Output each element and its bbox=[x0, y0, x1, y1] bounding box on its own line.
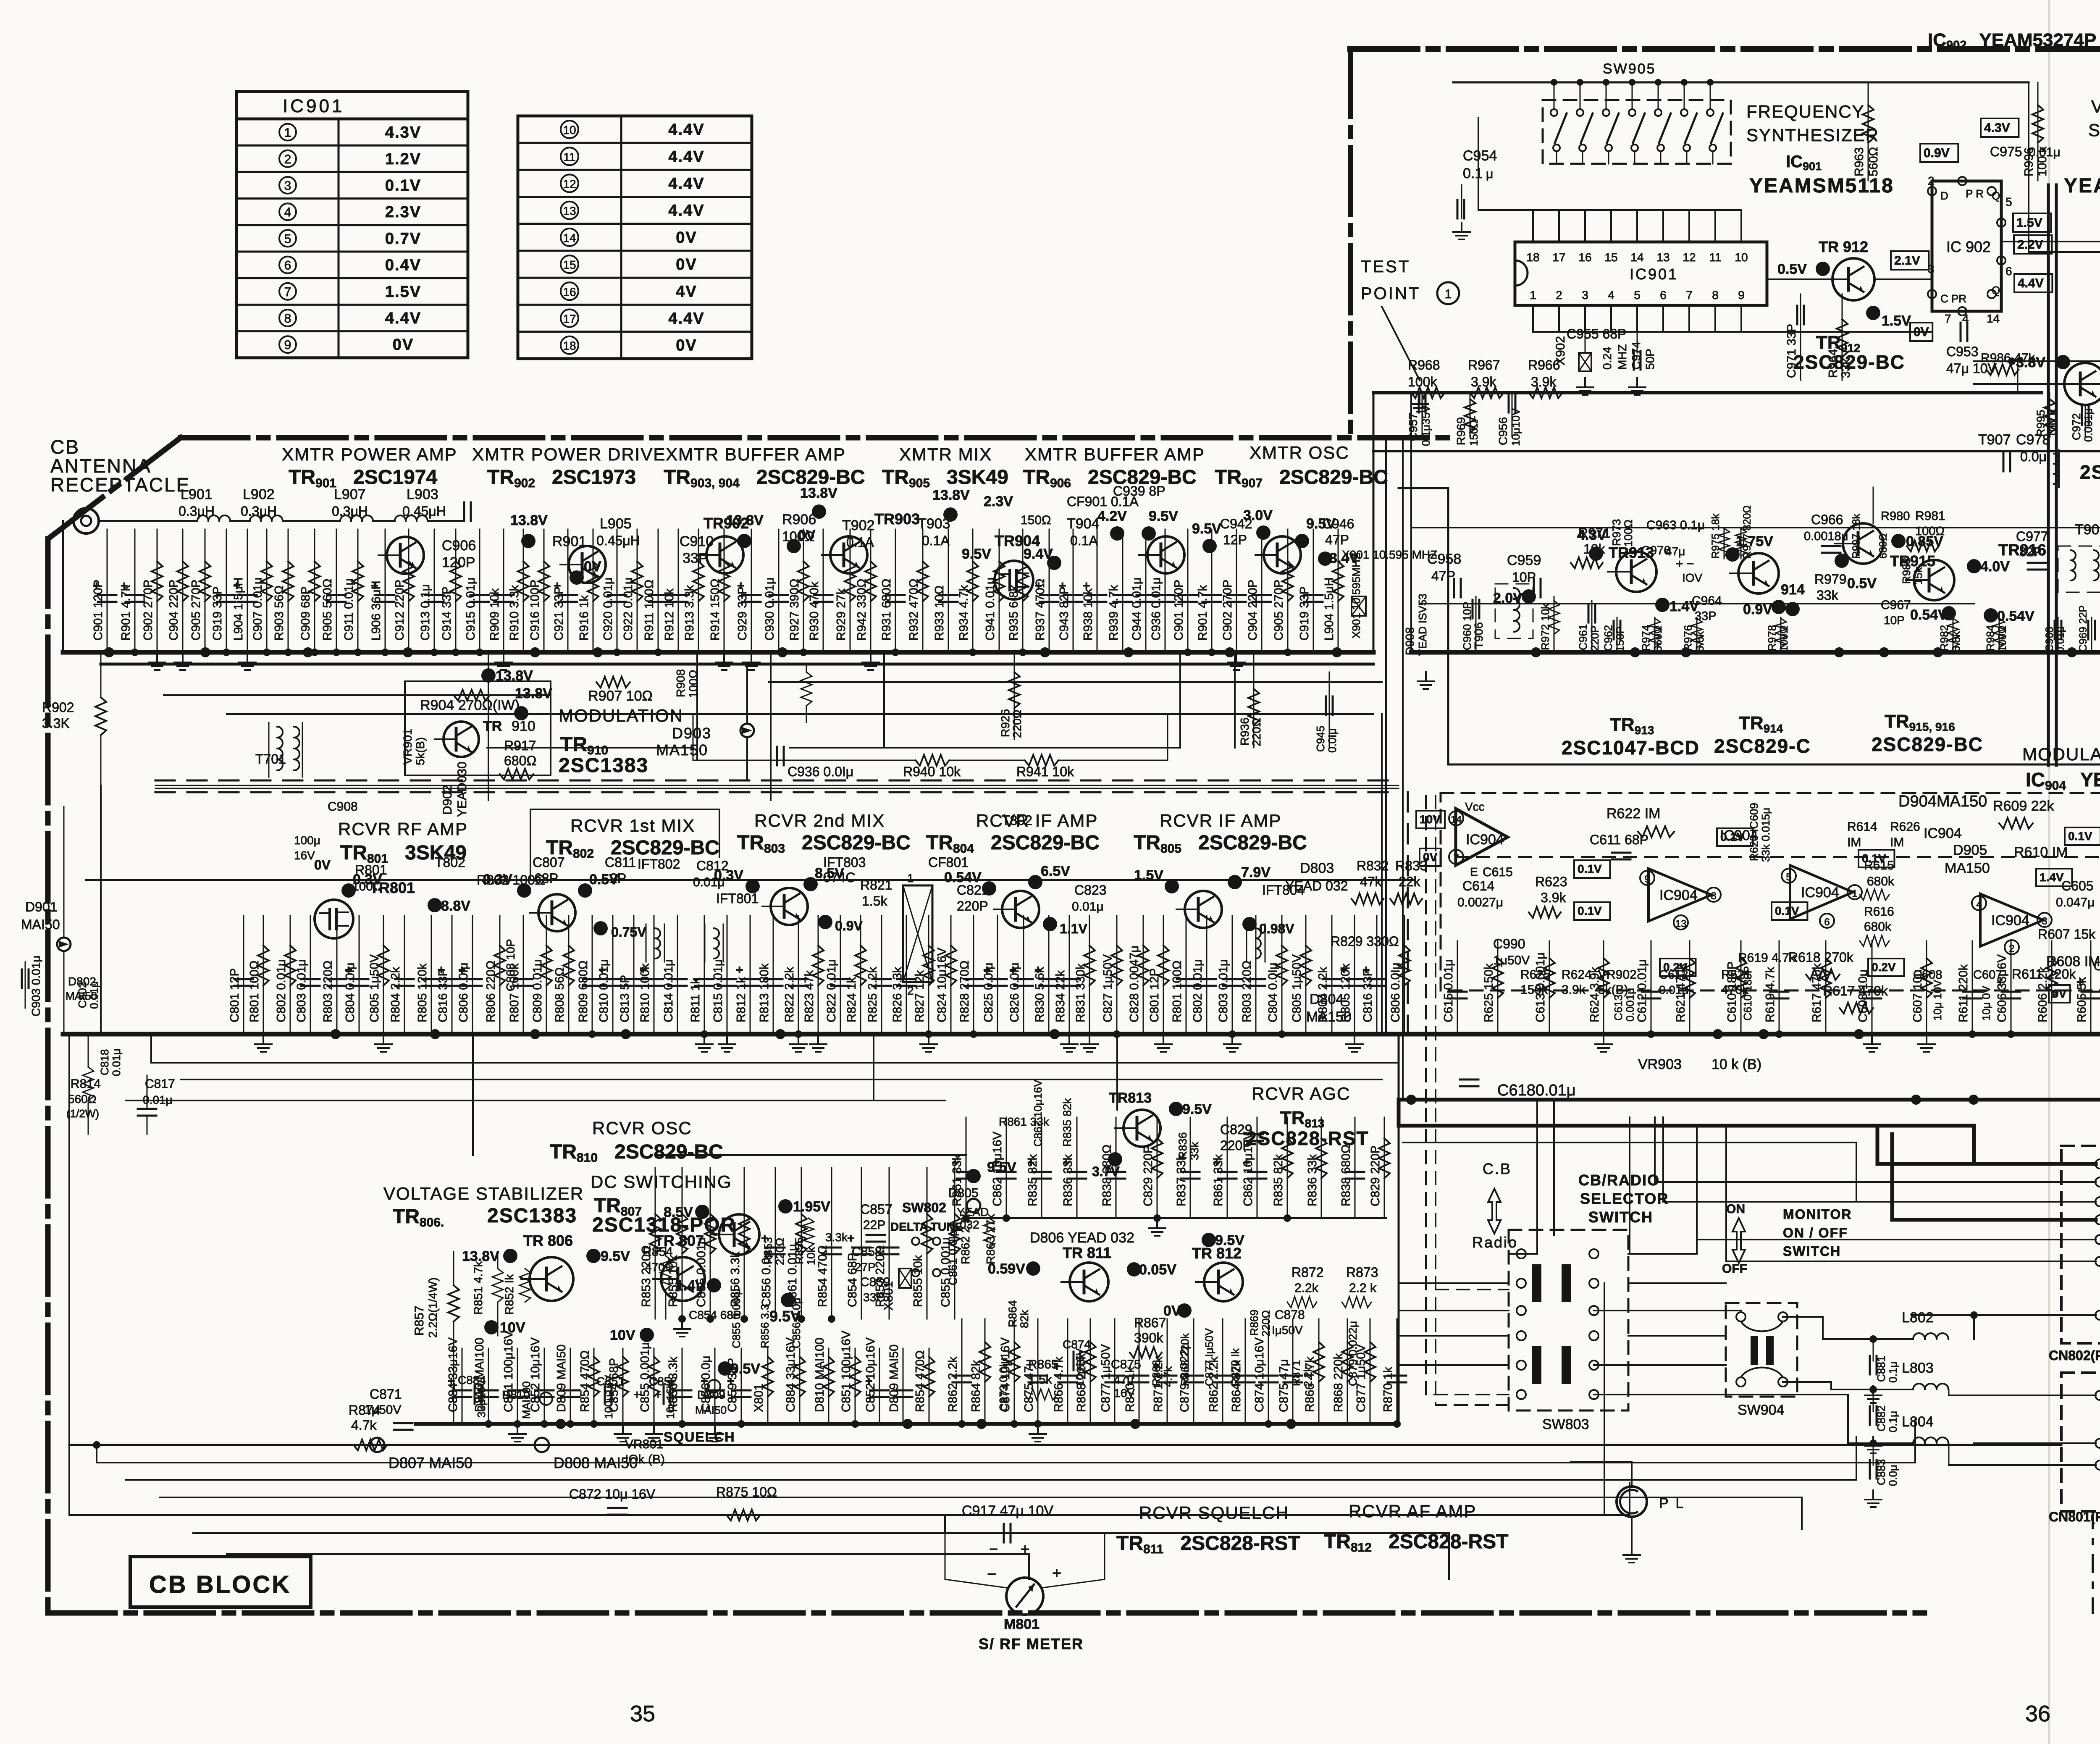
svg-text:R935 6.8k: R935 6.8k bbox=[1007, 585, 1021, 641]
svg-text:R855 10k: R855 10k bbox=[667, 1255, 680, 1307]
svg-text:5.6k: 5.6k bbox=[1693, 631, 1706, 652]
svg-text:STABILIZER: STABILIZER bbox=[2088, 120, 2100, 140]
svg-text:22P: 22P bbox=[863, 1218, 885, 1232]
svg-text:R979: R979 bbox=[1814, 572, 1847, 587]
svg-text:1: 1 bbox=[284, 126, 291, 140]
svg-text:3: 3 bbox=[1928, 263, 1935, 276]
svg-text:R804 2.2k: R804 2.2k bbox=[1316, 967, 1330, 1022]
svg-text:IC904: IC904 bbox=[1924, 825, 1962, 841]
svg-text:47P: 47P bbox=[1325, 532, 1349, 547]
svg-text:33P: 33P bbox=[682, 550, 708, 566]
svg-text:TR8032SC829-BC: TR8032SC829-BC bbox=[737, 832, 911, 856]
svg-text:POINT: POINT bbox=[1361, 284, 1420, 303]
svg-text:R856 3.3k: R856 3.3k bbox=[729, 1251, 742, 1307]
svg-text:9.5V: 9.5V bbox=[601, 1248, 630, 1264]
svg-text:R912 10k: R912 10k bbox=[663, 588, 676, 641]
svg-text:R803 220Ω: R803 220Ω bbox=[1240, 961, 1254, 1022]
svg-text:R823 47k: R823 47k bbox=[803, 970, 816, 1022]
svg-text:R856 3.3k: R856 3.3k bbox=[667, 1356, 680, 1412]
svg-text:TR: TR bbox=[483, 718, 502, 734]
svg-text:R857: R857 bbox=[412, 1305, 426, 1336]
svg-text:100Ω: 100Ω bbox=[352, 880, 382, 893]
svg-text:1.95V: 1.95V bbox=[793, 1199, 830, 1215]
svg-text:C803 0.01μ: C803 0.01μ bbox=[295, 959, 308, 1022]
svg-text:FREQUENCY: FREQUENCY bbox=[1746, 102, 1865, 121]
svg-text:R909 10k: R909 10k bbox=[488, 588, 501, 641]
svg-text:R832: R832 bbox=[1357, 858, 1389, 873]
svg-text:R805 120k: R805 120k bbox=[1339, 963, 1352, 1022]
svg-text:4.4V: 4.4V bbox=[668, 202, 704, 220]
svg-text:SYNTHESIZER: SYNTHESIZER bbox=[1746, 125, 1879, 145]
svg-text:R963: R963 bbox=[1853, 147, 1866, 176]
svg-text:+: + bbox=[1052, 1565, 1061, 1582]
svg-text:TEST: TEST bbox=[1361, 257, 1410, 276]
svg-text:C856 0.0μ: C856 0.0μ bbox=[699, 1356, 713, 1412]
svg-text:R616: R616 bbox=[1864, 905, 1894, 919]
svg-text:7.9V: 7.9V bbox=[1241, 864, 1270, 880]
svg-text:C606 33μ6V: C606 33μ6V bbox=[1995, 954, 2009, 1022]
svg-text:R870 1k: R870 1k bbox=[1381, 1366, 1395, 1412]
svg-text:C852 10μ16V: C852 10μ16V bbox=[529, 1337, 542, 1412]
svg-text:1.5V: 1.5V bbox=[1882, 313, 1911, 329]
svg-text:4.4V: 4.4V bbox=[668, 121, 704, 139]
svg-text:CN802(P): CN802(P) bbox=[2049, 1348, 2100, 1363]
svg-text:C957: C957 bbox=[1407, 413, 1420, 441]
svg-text:12: 12 bbox=[563, 178, 576, 191]
svg-text:D808 MAI50: D808 MAI50 bbox=[554, 1454, 638, 1471]
svg-text:0.3μH: 0.3μH bbox=[241, 504, 277, 519]
svg-text:L906 36μH: L906 36μH bbox=[370, 581, 383, 641]
svg-text:D902: D902 bbox=[441, 785, 454, 815]
svg-text:C611 68P: C611 68P bbox=[1590, 832, 1648, 847]
svg-text:100Ω: 100Ω bbox=[1622, 520, 1635, 547]
svg-text:C859 33P: C859 33P bbox=[726, 1358, 739, 1412]
svg-text:R852 Ik: R852 Ik bbox=[503, 1274, 516, 1315]
svg-text:C905 270P: C905 270P bbox=[189, 580, 203, 641]
svg-text:Radio: Radio bbox=[1472, 1234, 1518, 1251]
svg-text:914: 914 bbox=[1781, 582, 1805, 598]
svg-text:R926: R926 bbox=[999, 709, 1012, 737]
svg-text:Vcc: Vcc bbox=[1465, 800, 1485, 813]
svg-text:R967: R967 bbox=[1468, 357, 1500, 373]
svg-text:100 k: 100 k bbox=[2036, 147, 2049, 176]
svg-text:5: 5 bbox=[2005, 195, 2012, 208]
svg-text:R822 2.2k: R822 2.2k bbox=[783, 967, 796, 1022]
svg-text:0.45μH: 0.45μH bbox=[596, 533, 640, 548]
svg-text:L804: L804 bbox=[1902, 1414, 1934, 1430]
svg-text:910: 910 bbox=[512, 718, 535, 734]
svg-text:C966: C966 bbox=[1811, 512, 1843, 527]
svg-text:3.9k: 3.9k bbox=[1562, 983, 1586, 997]
svg-text:+ −: + − bbox=[1676, 557, 1694, 571]
svg-text:3.3k: 3.3k bbox=[825, 1231, 848, 1244]
svg-text:2SC1383: 2SC1383 bbox=[559, 754, 648, 777]
svg-text:C855 0.001μ: C855 0.001μ bbox=[638, 1342, 652, 1412]
svg-text:R933 10Ω: R933 10Ω bbox=[933, 586, 946, 641]
svg-text:R824 1k: R824 1k bbox=[845, 977, 858, 1022]
svg-text:100Ω: 100Ω bbox=[1915, 525, 1945, 538]
svg-text:R907 10Ω: R907 10Ω bbox=[588, 688, 653, 704]
svg-text:R905 560Ω: R905 560Ω bbox=[321, 579, 334, 641]
svg-text:C816 33P: C816 33P bbox=[1361, 968, 1375, 1022]
svg-text:R854 470Ω: R854 470Ω bbox=[578, 1350, 592, 1412]
svg-text:−: − bbox=[989, 1540, 998, 1558]
svg-text:C945: C945 bbox=[1314, 726, 1327, 752]
svg-text:1μ50V: 1μ50V bbox=[365, 1403, 401, 1417]
svg-text:XMTR BUFFER AMP: XMTR BUFFER AMP bbox=[1025, 444, 1205, 464]
svg-text:R830 5.6k: R830 5.6k bbox=[1033, 967, 1047, 1022]
svg-text:1.1V: 1.1V bbox=[1060, 921, 1087, 936]
svg-text:XMTR OSC: XMTR OSC bbox=[1249, 443, 1349, 462]
svg-text:C955 68P: C955 68P bbox=[1567, 326, 1626, 341]
svg-text:C875 47μ: C875 47μ bbox=[1277, 1359, 1291, 1412]
svg-text:R814: R814 bbox=[71, 1077, 101, 1091]
svg-text:R938 10k: R938 10k bbox=[1081, 588, 1095, 641]
svg-text:C905 270P: C905 270P bbox=[1272, 580, 1286, 641]
svg-text:35: 35 bbox=[630, 1701, 655, 1726]
svg-text:RECEPTACLE: RECEPTACLE bbox=[50, 474, 190, 496]
svg-text:R811 1k: R811 1k bbox=[689, 978, 702, 1022]
svg-text:13: 13 bbox=[1675, 918, 1687, 930]
svg-text:R901 4.7k: R901 4.7k bbox=[119, 585, 133, 641]
svg-text:CF901 0.1A: CF901 0.1A bbox=[1067, 494, 1139, 509]
svg-text:SWITCH: SWITCH bbox=[1588, 1208, 1653, 1226]
svg-text:6.5V: 6.5V bbox=[1041, 863, 1070, 879]
svg-text:R986 47k: R986 47k bbox=[1981, 351, 2035, 365]
svg-text:C875 47μ: C875 47μ bbox=[1022, 1359, 1036, 1412]
svg-text:T904: T904 bbox=[1067, 516, 1100, 532]
svg-text:C854 68P: C854 68P bbox=[607, 1358, 621, 1412]
svg-text:C829 220P: C829 220P bbox=[1142, 1145, 1155, 1206]
svg-text:100k: 100k bbox=[1408, 374, 1437, 389]
svg-text:R873: R873 bbox=[1346, 1265, 1378, 1280]
svg-text:C920 0.01μ: C920 0.01μ bbox=[601, 577, 615, 641]
svg-text:13.8V: 13.8V bbox=[515, 686, 552, 701]
svg-text:C809 0.01μ: C809 0.01μ bbox=[531, 959, 544, 1022]
svg-text:D904MA150: D904MA150 bbox=[1898, 793, 1987, 810]
svg-text:R940 10k: R940 10k bbox=[903, 764, 961, 779]
svg-text:C963 0.1μ: C963 0.1μ bbox=[1646, 518, 1705, 532]
svg-text:C814 0.01μ: C814 0.01μ bbox=[662, 959, 675, 1022]
svg-text:RCVR IF AMP: RCVR IF AMP bbox=[976, 811, 1098, 830]
svg-text:6: 6 bbox=[284, 259, 291, 273]
svg-text:680k: 680k bbox=[1867, 875, 1895, 888]
svg-text:33k: 33k bbox=[1839, 358, 1853, 378]
svg-text:150Ω: 150Ω bbox=[1021, 513, 1051, 527]
svg-text:680k: 680k bbox=[1864, 920, 1892, 934]
svg-text:TR 912: TR 912 bbox=[1819, 238, 1868, 255]
svg-text:R871 2.2k: R871 2.2k bbox=[1152, 1356, 1165, 1412]
svg-text:C922 0.01μ: C922 0.01μ bbox=[622, 577, 635, 641]
svg-text:560Ω: 560Ω bbox=[68, 1093, 97, 1106]
svg-text:C855 0.001μ: C855 0.001μ bbox=[695, 1237, 708, 1307]
svg-text:RCVR RF AMP: RCVR RF AMP bbox=[338, 819, 468, 839]
svg-text:VR901: VR901 bbox=[401, 728, 414, 764]
svg-text:560Ω: 560Ω bbox=[1867, 147, 1880, 176]
svg-text:4: 4 bbox=[284, 205, 291, 219]
svg-text:R939 4.7k: R939 4.7k bbox=[1107, 585, 1121, 641]
svg-text:D810 MAI100: D810 MAI100 bbox=[473, 1338, 486, 1412]
svg-text:R937 470Ω: R937 470Ω bbox=[1034, 579, 1047, 641]
svg-text:C906: C906 bbox=[442, 538, 476, 554]
svg-text:13: 13 bbox=[1656, 251, 1669, 264]
svg-text:C959: C959 bbox=[1507, 552, 1541, 568]
svg-text:IFT801: IFT801 bbox=[716, 891, 759, 906]
svg-text:SW905: SW905 bbox=[1603, 61, 1656, 77]
svg-text:C606: C606 bbox=[2094, 960, 2100, 973]
svg-text:0.9V: 0.9V bbox=[1924, 146, 1950, 160]
svg-text:R838 680Ω: R838 680Ω bbox=[1100, 1145, 1114, 1206]
svg-text:2.3V: 2.3V bbox=[984, 494, 1013, 510]
svg-text:C936 0.0Iμ: C936 0.0Iμ bbox=[787, 764, 853, 779]
svg-text:C916 100P: C916 100P bbox=[528, 580, 542, 641]
svg-text:C901 120P: C901 120P bbox=[92, 580, 105, 641]
svg-text:RCVR IF AMP: RCVR IF AMP bbox=[1160, 811, 1281, 830]
svg-text:0.24: 0.24 bbox=[1601, 347, 1614, 370]
svg-text:0V: 0V bbox=[314, 857, 331, 872]
svg-text:14: 14 bbox=[1451, 814, 1462, 825]
svg-text:MAI50: MAI50 bbox=[21, 917, 60, 932]
svg-text:10P: 10P bbox=[1512, 570, 1536, 585]
svg-text:33k 0.015μ: 33k 0.015μ bbox=[1759, 808, 1772, 862]
svg-text:R901: R901 bbox=[552, 533, 586, 549]
svg-text:C878: C878 bbox=[1275, 1308, 1305, 1322]
svg-text:R864 82k: R864 82k bbox=[969, 1360, 983, 1412]
svg-text:L904 1.5μH: L904 1.5μH bbox=[1323, 577, 1336, 641]
svg-text:R806 220Ω: R806 220Ω bbox=[484, 961, 498, 1022]
svg-text:C930 0.01μ: C930 0.01μ bbox=[763, 577, 777, 641]
svg-text:220P: 220P bbox=[957, 898, 988, 914]
svg-text:R803 220Ω: R803 220Ω bbox=[321, 961, 335, 1022]
svg-text:2: 2 bbox=[284, 152, 291, 166]
svg-text:R862 2.2k: R862 2.2k bbox=[946, 1356, 960, 1412]
svg-text:L802: L802 bbox=[1902, 1310, 1934, 1326]
svg-text:0.0μ: 0.0μ bbox=[1887, 1465, 1899, 1486]
svg-text:μ: μ bbox=[1486, 167, 1493, 181]
svg-text:680Ω: 680Ω bbox=[504, 753, 536, 768]
svg-text:3: 3 bbox=[1582, 289, 1588, 302]
svg-text:9.5V: 9.5V bbox=[1192, 521, 1221, 537]
svg-text:C908: C908 bbox=[328, 800, 358, 814]
svg-text:TR9072SC829-BC: TR9072SC829-BC bbox=[1215, 466, 1388, 490]
svg-text:R835 82k: R835 82k bbox=[1061, 1098, 1074, 1147]
svg-text:7: 7 bbox=[284, 285, 291, 299]
svg-text:R974: R974 bbox=[1640, 625, 1652, 651]
svg-text:0.1μ: 0.1μ bbox=[1887, 1411, 1899, 1432]
svg-text:D905: D905 bbox=[1953, 842, 1987, 858]
svg-text:C913 0.1μ: C913 0.1μ bbox=[419, 584, 432, 641]
svg-text:C824 10μ16V: C824 10μ16V bbox=[935, 947, 949, 1022]
svg-text:17: 17 bbox=[1552, 251, 1565, 264]
svg-text:R809 680Ω: R809 680Ω bbox=[577, 961, 590, 1022]
svg-text:16V: 16V bbox=[294, 849, 315, 862]
svg-text:T701: T701 bbox=[255, 751, 286, 767]
svg-text:R975 18k: R975 18k bbox=[1710, 513, 1722, 559]
svg-text:C851 100μ16V: C851 100μ16V bbox=[840, 1330, 853, 1412]
svg-text:+: + bbox=[847, 1232, 855, 1245]
svg-text:D807 MAI50: D807 MAI50 bbox=[388, 1454, 472, 1471]
svg-text:C802 0.01μ: C802 0.01μ bbox=[1191, 959, 1205, 1022]
svg-text:6: 6 bbox=[2005, 265, 2012, 278]
svg-text:D802: D802 bbox=[68, 975, 96, 988]
svg-text:R916 1k: R916 1k bbox=[577, 595, 591, 641]
svg-text:C813 5P: C813 5P bbox=[618, 975, 632, 1022]
svg-text:C961: C961 bbox=[1577, 624, 1589, 650]
svg-text:R854 470Ω: R854 470Ω bbox=[913, 1350, 927, 1412]
svg-text:IC901: IC901 bbox=[1630, 265, 1678, 283]
svg-text:R934 4.7k: R934 4.7k bbox=[957, 585, 971, 641]
svg-text:D908: D908 bbox=[1403, 627, 1416, 655]
svg-text:T802: T802 bbox=[435, 855, 465, 870]
svg-text:4.3V: 4.3V bbox=[1984, 121, 2010, 135]
svg-text:C919 33P: C919 33P bbox=[1298, 586, 1311, 641]
svg-text:R825 2.2k: R825 2.2k bbox=[866, 967, 879, 1022]
svg-text:C904 220P: C904 220P bbox=[167, 580, 181, 641]
svg-text:R607 15k: R607 15k bbox=[2038, 927, 2096, 942]
svg-text:L902: L902 bbox=[243, 486, 275, 502]
svg-text:1: 1 bbox=[1530, 289, 1536, 302]
svg-text:4: 4 bbox=[1608, 289, 1614, 302]
svg-text:XMTR POWER AMP: XMTR POWER AMP bbox=[282, 444, 457, 464]
svg-text:0V: 0V bbox=[393, 336, 414, 354]
svg-text:R836 33k: R836 33k bbox=[1306, 1154, 1319, 1206]
svg-text:C852 10μ16V: C852 10μ16V bbox=[864, 1337, 877, 1412]
svg-text:R614: R614 bbox=[1847, 820, 1877, 834]
svg-text:R930 470k: R930 470k bbox=[808, 581, 821, 641]
svg-text:C805 1μ50V: C805 1μ50V bbox=[368, 954, 381, 1022]
svg-text:C914 33P: C914 33P bbox=[440, 586, 454, 641]
svg-text:MODULATION AMP: MODULATION AMP bbox=[2022, 744, 2100, 764]
svg-text:2SA564-PQR: 2SA564-PQR bbox=[2080, 461, 2100, 483]
svg-text:C975: C975 bbox=[1990, 144, 2022, 159]
svg-text:R902: R902 bbox=[42, 700, 74, 715]
svg-text:TR9062SC829-BC: TR9062SC829-BC bbox=[1023, 466, 1197, 490]
svg-text:R969: R969 bbox=[1454, 417, 1467, 445]
svg-text:VR801: VR801 bbox=[625, 1437, 664, 1451]
svg-text:C904 220P: C904 220P bbox=[1246, 580, 1260, 641]
svg-text:0.1V: 0.1V bbox=[2068, 830, 2092, 843]
svg-text:R829 330Ω: R829 330Ω bbox=[1331, 934, 1399, 949]
svg-text:C967: C967 bbox=[1881, 598, 1911, 612]
svg-text:C910: C910 bbox=[680, 533, 714, 549]
svg-text:RCVR AF AMP: RCVR AF AMP bbox=[1349, 1501, 1476, 1521]
svg-text:C954: C954 bbox=[1463, 148, 1497, 164]
svg-text:D903: D903 bbox=[672, 725, 711, 742]
svg-text:100μ: 100μ bbox=[294, 834, 320, 847]
svg-text:R976: R976 bbox=[1682, 625, 1694, 651]
svg-text:C879 0.022μ: C879 0.022μ bbox=[1178, 1342, 1192, 1412]
svg-text:9.5V: 9.5V bbox=[1215, 1232, 1244, 1248]
svg-text:9.5V: 9.5V bbox=[962, 546, 991, 562]
svg-text:4.3V: 4.3V bbox=[385, 124, 421, 142]
svg-text:D809 MAI50: D809 MAI50 bbox=[555, 1345, 568, 1412]
svg-text:R868 220k: R868 220k bbox=[1332, 1353, 1345, 1412]
svg-text:C805 1μ50V: C805 1μ50V bbox=[1290, 954, 1304, 1022]
svg-text:4.4V: 4.4V bbox=[668, 310, 704, 328]
svg-text:R968: R968 bbox=[1408, 357, 1440, 373]
svg-text:IFT803: IFT803 bbox=[823, 855, 866, 870]
svg-text:14: 14 bbox=[1987, 312, 2000, 325]
svg-text:R828 270Ω: R828 270Ω bbox=[958, 961, 971, 1022]
svg-text:R625 150k: R625 150k bbox=[1482, 963, 1496, 1022]
svg-text:C856 0.0μ: C856 0.0μ bbox=[760, 1251, 773, 1307]
svg-text:IM: IM bbox=[1847, 835, 1861, 849]
svg-text:R623: R623 bbox=[1535, 874, 1567, 889]
svg-text:R875 10Ω: R875 10Ω bbox=[716, 1484, 777, 1500]
svg-text:R810 100k: R810 100k bbox=[638, 963, 652, 1022]
svg-text:IC904: IC904 bbox=[1801, 885, 1839, 901]
svg-text:15: 15 bbox=[563, 258, 576, 271]
svg-text:C6180.01μ: C6180.01μ bbox=[1497, 1082, 1576, 1099]
svg-text:C825 0.0Iμ: C825 0.0Iμ bbox=[982, 963, 995, 1022]
svg-text:1: 1 bbox=[907, 872, 914, 885]
svg-text:R834 22k: R834 22k bbox=[1054, 970, 1067, 1022]
svg-text:68P: 68P bbox=[534, 871, 558, 886]
svg-text:C828 0.0047μ: C828 0.0047μ bbox=[1128, 946, 1141, 1022]
svg-text:R978: R978 bbox=[1766, 625, 1778, 651]
svg-text:0.0018μ: 0.0018μ bbox=[1804, 530, 1848, 543]
svg-text:0.4V: 0.4V bbox=[385, 257, 421, 274]
svg-text:RCVR SQUELCH: RCVR SQUELCH bbox=[1139, 1503, 1289, 1523]
svg-text:MHZ: MHZ bbox=[1616, 344, 1629, 370]
svg-text:18: 18 bbox=[1526, 251, 1539, 264]
svg-text:9.5V: 9.5V bbox=[1149, 508, 1178, 524]
svg-text:18: 18 bbox=[563, 339, 576, 352]
svg-text:6: 6 bbox=[1824, 917, 1830, 928]
svg-text:0.1μ: 0.1μ bbox=[1887, 1361, 1899, 1383]
svg-text:R826 3.3k: R826 3.3k bbox=[891, 967, 904, 1022]
svg-text:0.5V: 0.5V bbox=[1847, 575, 1877, 591]
svg-text:100Ω: 100Ω bbox=[1996, 625, 2008, 652]
svg-text:SW803: SW803 bbox=[1542, 1416, 1589, 1432]
svg-text:M801: M801 bbox=[1004, 1616, 1039, 1632]
svg-text:9: 9 bbox=[284, 338, 291, 352]
svg-text:10V: 10V bbox=[1420, 813, 1441, 826]
svg-text:R808 56Ω: R808 56Ω bbox=[553, 967, 567, 1022]
svg-text:8: 8 bbox=[1712, 289, 1719, 302]
svg-text:C944 0.01μ: C944 0.01μ bbox=[1130, 577, 1144, 641]
svg-text:100Ω: 100Ω bbox=[782, 529, 814, 544]
svg-text:R624: R624 bbox=[1562, 968, 1592, 982]
svg-text:C862 10μ16V: C862 10μ16V bbox=[1242, 1131, 1255, 1206]
svg-text:8.5V: 8.5V bbox=[664, 1204, 693, 1220]
svg-text:0.1A: 0.1A bbox=[1070, 533, 1098, 548]
svg-text:R904 270Ω(IW): R904 270Ω(IW) bbox=[420, 697, 520, 713]
svg-text:9: 9 bbox=[1644, 874, 1650, 885]
svg-text:D810 MAI100: D810 MAI100 bbox=[813, 1338, 827, 1412]
svg-text:0.3μH: 0.3μH bbox=[178, 504, 215, 519]
svg-text:032: 032 bbox=[960, 1218, 979, 1231]
svg-text:6: 6 bbox=[1660, 289, 1667, 302]
svg-text:R973: R973 bbox=[1610, 519, 1623, 546]
svg-text:47μ: 47μ bbox=[1665, 545, 1685, 558]
svg-text:R801 100Ω: R801 100Ω bbox=[248, 961, 261, 1022]
svg-text:R869: R869 bbox=[1248, 1310, 1260, 1336]
svg-text:5: 5 bbox=[284, 232, 291, 246]
svg-text:4.0V: 4.0V bbox=[1980, 559, 2010, 575]
svg-text:C884 33μ16V: C884 33μ16V bbox=[446, 1337, 460, 1412]
svg-text:MA150: MA150 bbox=[1945, 860, 1990, 876]
svg-text:T907: T907 bbox=[1978, 432, 2011, 448]
svg-text:C872 10μ 16V: C872 10μ 16V bbox=[569, 1487, 656, 1502]
svg-text:TR9022SC1973: TR9022SC1973 bbox=[487, 466, 636, 490]
svg-text:CB BLOCK: CB BLOCK bbox=[149, 1571, 291, 1598]
svg-text:4: 4 bbox=[1976, 899, 1982, 910]
svg-text:2: 2 bbox=[1556, 289, 1562, 302]
svg-text:1.5k: 1.5k bbox=[862, 893, 887, 909]
svg-text:2.2Ω(1/4W): 2.2Ω(1/4W) bbox=[426, 1277, 439, 1338]
svg-text:C851 100μ16V: C851 100μ16V bbox=[502, 1330, 515, 1412]
